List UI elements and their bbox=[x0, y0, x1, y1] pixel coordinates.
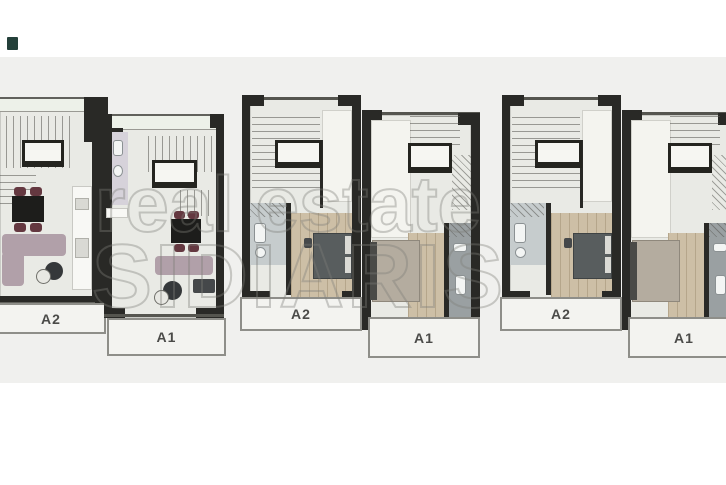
chair bbox=[30, 223, 42, 232]
staircase bbox=[410, 115, 460, 145]
building-group-right: A2 A1 bbox=[502, 95, 726, 365]
chair bbox=[188, 211, 199, 219]
coffee-table bbox=[36, 269, 51, 284]
elevator-shaft bbox=[408, 143, 452, 173]
chair bbox=[30, 187, 42, 196]
window-band bbox=[110, 114, 218, 130]
floor-plans-canvas: A2 A1 bbox=[0, 0, 726, 485]
staircase bbox=[712, 155, 726, 210]
unit-label: A2 bbox=[41, 311, 61, 327]
coffee-table bbox=[154, 290, 169, 305]
terrace-room bbox=[371, 120, 411, 238]
balcony-a2: A2 bbox=[500, 297, 622, 331]
bathroom-fixture bbox=[455, 275, 466, 295]
staircase bbox=[452, 155, 471, 210]
wall bbox=[216, 114, 224, 318]
tv-console bbox=[193, 279, 215, 293]
dining-table bbox=[12, 196, 44, 222]
chair bbox=[14, 223, 26, 232]
balcony-a1: A1 bbox=[628, 317, 726, 358]
bathroom-fixture bbox=[514, 223, 526, 243]
wall bbox=[210, 114, 224, 128]
wall bbox=[352, 97, 361, 303]
pillow bbox=[345, 257, 351, 273]
wall bbox=[104, 314, 224, 317]
chair bbox=[188, 244, 199, 252]
unit-label: A1 bbox=[157, 329, 177, 345]
terrace-room bbox=[322, 110, 352, 202]
kitchen-counter bbox=[106, 208, 128, 218]
wall bbox=[612, 97, 621, 303]
elevator-shaft bbox=[668, 143, 712, 173]
wall bbox=[471, 115, 480, 330]
closet bbox=[449, 223, 471, 237]
bathroom-fixture bbox=[515, 247, 526, 258]
pillow bbox=[605, 236, 611, 254]
bathroom bbox=[449, 223, 471, 320]
terrace-room bbox=[582, 110, 612, 202]
window-band bbox=[0, 97, 95, 112]
wall bbox=[502, 97, 510, 303]
balcony-a1: A1 bbox=[368, 317, 480, 358]
appliance bbox=[75, 198, 89, 210]
unit-label: A1 bbox=[414, 330, 434, 346]
elevator-shaft bbox=[22, 140, 64, 167]
elevator-shaft bbox=[535, 140, 582, 168]
unit-label: A2 bbox=[551, 306, 571, 322]
headboard bbox=[370, 242, 377, 300]
sofa bbox=[155, 256, 213, 275]
wall bbox=[242, 97, 250, 303]
bathroom-fixture bbox=[113, 165, 123, 177]
unit-label: A2 bbox=[291, 306, 311, 322]
unit-label: A1 bbox=[674, 330, 694, 346]
bed bbox=[372, 240, 420, 302]
bathroom-fixture bbox=[255, 247, 266, 258]
balcony-a1: A1 bbox=[107, 318, 226, 356]
staircase bbox=[670, 115, 720, 145]
chair bbox=[174, 211, 185, 219]
appliance bbox=[75, 238, 89, 258]
bathroom-fixture bbox=[113, 140, 123, 156]
bathroom-fixture bbox=[715, 275, 726, 295]
pillow bbox=[605, 257, 611, 273]
nightstand bbox=[304, 238, 312, 248]
dining-table bbox=[171, 219, 201, 243]
bathroom-fixture bbox=[713, 243, 726, 252]
balcony-a2: A2 bbox=[240, 297, 362, 331]
bathroom-fixture bbox=[254, 223, 266, 243]
balcony-a2: A2 bbox=[0, 303, 106, 334]
bed bbox=[632, 240, 680, 302]
nightstand bbox=[564, 238, 572, 248]
elevator-shaft bbox=[152, 160, 197, 188]
sofa bbox=[2, 252, 24, 286]
chair bbox=[174, 244, 185, 252]
elevator-shaft bbox=[275, 140, 322, 168]
terrace-room bbox=[631, 120, 671, 238]
building-group-middle: A2 A1 bbox=[242, 95, 482, 365]
closet bbox=[709, 223, 726, 237]
chair bbox=[14, 187, 26, 196]
bathroom-fixture bbox=[453, 243, 467, 252]
closet bbox=[250, 203, 284, 217]
pillow bbox=[345, 236, 351, 254]
bathroom bbox=[709, 223, 726, 320]
headboard bbox=[630, 242, 637, 300]
closet bbox=[510, 203, 544, 217]
